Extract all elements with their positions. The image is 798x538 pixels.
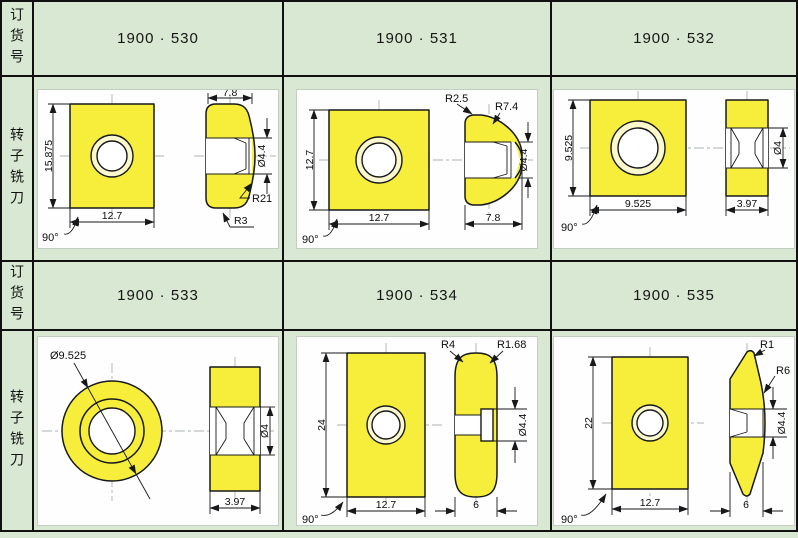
radius-edge-label: R1.68 xyxy=(497,339,526,351)
radius-top-label: R4 xyxy=(441,339,455,351)
dim-height-label: 12.7 xyxy=(304,149,316,170)
order-number-533: 1900 · 533 xyxy=(117,287,199,304)
side-view: R2.5 R7.4 Ø4.4 7.8 xyxy=(445,93,533,230)
cutter-header-label: 转子铣刀 xyxy=(10,127,24,211)
dim-angle-label: 90° xyxy=(302,514,319,525)
dim-angle-label: 90° xyxy=(561,222,578,234)
radius-large-label: R21 xyxy=(252,193,272,205)
dim-angle-label: 90° xyxy=(302,234,319,246)
drawing-1900-534: 24 12.7 90° R4 xyxy=(297,337,537,525)
drawing-1900-535: 22 12.7 90° R1 xyxy=(554,337,794,525)
drawing-cell-532: 9.525 9.525 90° xyxy=(552,77,796,260)
drawing-panel-530: 15.875 12.7 90° xyxy=(37,89,279,249)
drawing-1900-531: 12.7 12.7 90° xyxy=(297,90,537,248)
product-table: 订货号 1900 · 530 1900 · 531 1900 · 532 转子铣… xyxy=(0,0,798,532)
side-view: 7.8 Ø4.4 R21 R3 xyxy=(194,90,276,227)
dim-side-width-label: 7.8 xyxy=(486,212,501,224)
dim-hole-label: Ø4.4 xyxy=(256,144,268,167)
order-cell-530: 1900 · 530 xyxy=(34,2,282,75)
dim-outer-dia-label: Ø9.525 xyxy=(50,350,86,362)
drawing-panel-535: 22 12.7 90° R1 xyxy=(553,336,795,526)
radius-small-label: R3 xyxy=(234,215,248,227)
drawing-cell-535: 22 12.7 90° R1 xyxy=(552,331,796,530)
side-view: R1 R6 Ø4.4 6 xyxy=(710,339,790,517)
order-cell-531: 1900 · 531 xyxy=(284,2,550,75)
dim-side-width-label: 3.97 xyxy=(737,198,758,210)
radius-large-label: R7.4 xyxy=(495,101,518,113)
order-cell-535: 1900 · 535 xyxy=(552,262,796,329)
order-cell-534: 1900 · 534 xyxy=(284,262,550,329)
order-number-531: 1900 · 531 xyxy=(376,30,458,47)
order-number-535: 1900 · 535 xyxy=(633,287,715,304)
order-cell-532: 1900 · 532 xyxy=(552,2,796,75)
dim-width-label: 12.7 xyxy=(376,499,397,511)
drawing-panel-532: 9.525 9.525 90° xyxy=(553,89,795,249)
row-header-order-number-1: 订货号 xyxy=(2,2,32,75)
dim-height-label: 24 xyxy=(316,419,328,431)
drawing-1900-530: 15.875 12.7 90° xyxy=(38,90,278,248)
dim-hole-label: Ø4 xyxy=(259,423,271,437)
order-number-534: 1900 · 534 xyxy=(376,287,458,304)
row-header-cutter-2: 转子铣刀 xyxy=(2,331,32,530)
drawing-1900-533: Ø9.525 Ø4 xyxy=(38,337,278,525)
drawing-cell-534: 24 12.7 90° R4 xyxy=(284,331,550,530)
dim-side-width-label: 6 xyxy=(743,499,749,511)
side-view: R4 R1.68 Ø4.4 6 xyxy=(435,339,529,517)
drawing-panel-534: 24 12.7 90° R4 xyxy=(296,336,538,526)
dim-angle-label: 90° xyxy=(42,232,59,244)
dim-width-label: 9.525 xyxy=(625,198,651,210)
row-header-order-number-2: 订货号 xyxy=(2,262,32,329)
dim-width-label: 12.7 xyxy=(102,210,123,222)
radius-small-label: R2.5 xyxy=(445,93,468,105)
dim-width-label: 12.7 xyxy=(640,497,661,509)
drawing-1900-532: 9.525 9.525 90° xyxy=(554,90,794,248)
dim-hole-label: Ø4.4 xyxy=(518,148,530,171)
order-header-label: 订货号 xyxy=(10,7,24,70)
order-cell-533: 1900 · 533 xyxy=(34,262,282,329)
dim-side-width-label: 3.97 xyxy=(225,496,246,508)
dim-angle-label: 90° xyxy=(561,514,578,525)
catalog-page: 订货号 1900 · 530 1900 · 531 1900 · 532 转子铣… xyxy=(0,0,798,538)
dim-height-label: 15.875 xyxy=(43,139,55,171)
radius-top-label: R1 xyxy=(760,339,774,351)
dim-hole-label: Ø4.4 xyxy=(776,411,788,434)
side-view: Ø4 3.97 xyxy=(210,357,275,514)
cutter-header-label: 转子铣刀 xyxy=(10,389,24,473)
front-view: 22 12.7 90° xyxy=(561,347,704,525)
dim-hole-label: Ø4 xyxy=(772,140,784,154)
dim-width-label: 12.7 xyxy=(369,212,390,224)
radius-side-label: R6 xyxy=(776,365,790,377)
order-number-530: 1900 · 530 xyxy=(117,30,199,47)
drawing-panel-531: 12.7 12.7 90° xyxy=(296,89,538,249)
row-header-cutter-1: 转子铣刀 xyxy=(2,77,32,260)
dim-height-label: 9.525 xyxy=(563,134,575,160)
dim-side-width-label: 7.8 xyxy=(223,90,238,99)
order-header-label: 订货号 xyxy=(10,264,24,327)
drawing-panel-533: Ø9.525 Ø4 xyxy=(37,336,279,526)
drawing-cell-531: 12.7 12.7 90° xyxy=(284,77,550,260)
dim-side-width-label: 6 xyxy=(473,499,479,511)
front-view: 24 12.7 90° xyxy=(302,343,445,525)
order-number-532: 1900 · 532 xyxy=(633,30,715,47)
drawing-cell-530: 15.875 12.7 90° xyxy=(34,77,282,260)
dim-hole-label: Ø4.4 xyxy=(517,413,529,436)
front-view: 15.875 12.7 90° xyxy=(42,94,164,244)
drawing-cell-533: Ø9.525 Ø4 xyxy=(34,331,282,530)
side-view: Ø4 3.97 xyxy=(726,91,788,216)
dim-height-label: 22 xyxy=(583,417,595,429)
